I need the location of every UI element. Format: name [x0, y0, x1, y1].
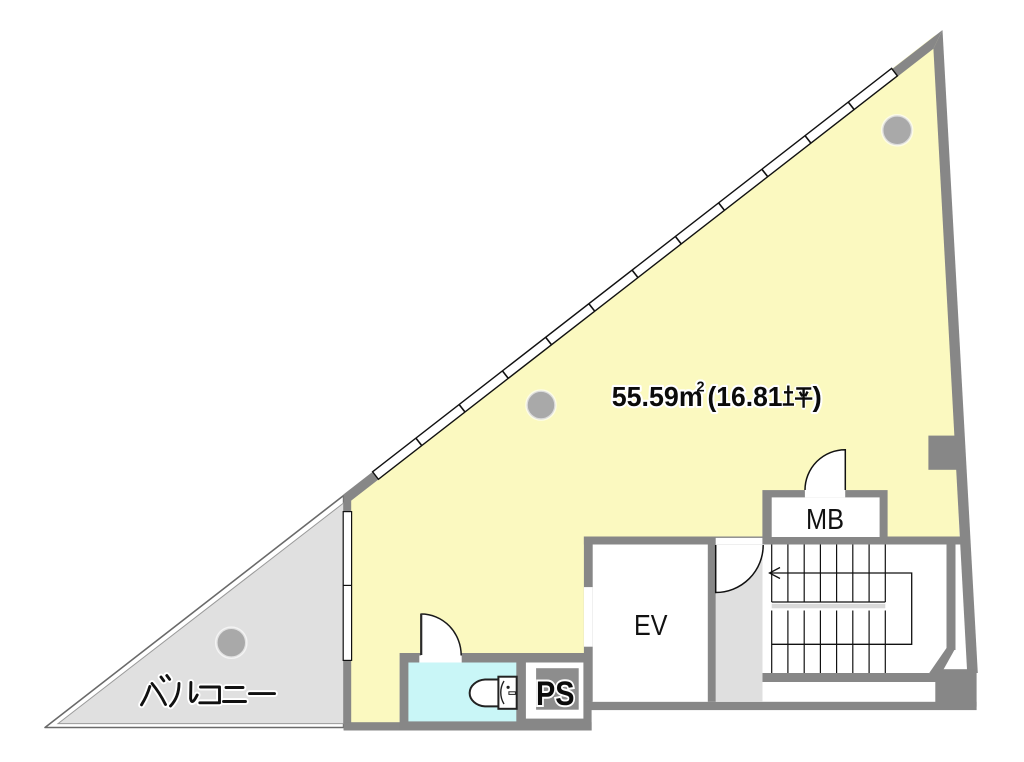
svg-text:55.59m: 55.59m [612, 381, 703, 412]
svg-text:PS: PS [536, 675, 575, 713]
svg-text:EV: EV [634, 610, 668, 642]
svg-text:MB: MB [806, 504, 844, 536]
svg-text:(16.81: (16.81 [708, 381, 783, 412]
svg-text:): ) [813, 381, 822, 412]
svg-text:2: 2 [697, 380, 705, 396]
